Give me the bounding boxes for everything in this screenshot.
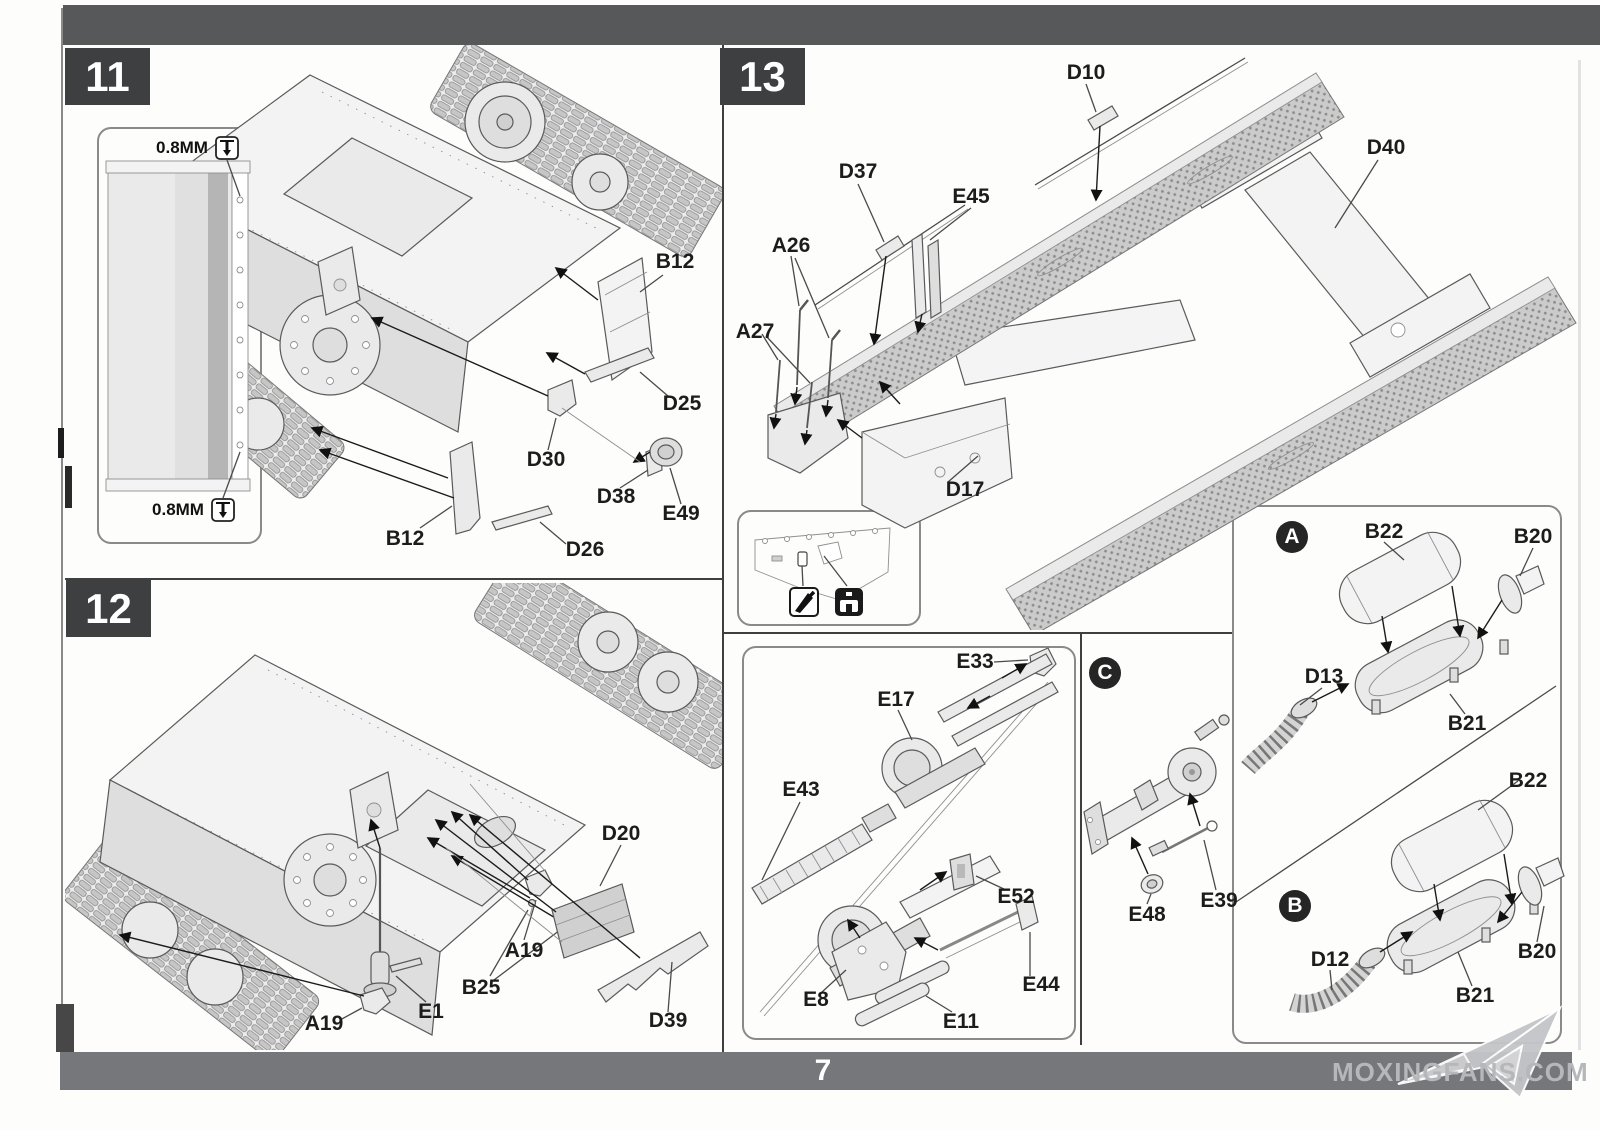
part-label-d12: D12 xyxy=(1311,948,1350,972)
part-label-a19: A19 xyxy=(505,939,544,963)
c-parts-drawing xyxy=(1084,715,1229,904)
part-label-d13: D13 xyxy=(1305,665,1344,689)
drill-note-bottom: 0.8MM xyxy=(152,500,204,520)
part-label-d17: D17 xyxy=(946,478,985,502)
part-label-d30: D30 xyxy=(527,448,566,472)
step12-illustration xyxy=(60,552,758,1063)
glue-icon xyxy=(835,588,863,616)
part-label-e11: E11 xyxy=(943,1010,979,1034)
drill-note-top: 0.8MM xyxy=(156,138,208,158)
part-label-e33: E33 xyxy=(956,650,993,674)
drill-icon xyxy=(212,499,234,521)
part-label-d10: D10 xyxy=(1067,61,1106,85)
step11-inset-drawing xyxy=(106,137,250,521)
part-label-e44: E44 xyxy=(1022,973,1059,997)
part-d30-bracket xyxy=(548,380,576,416)
part-d17-box xyxy=(862,398,1012,528)
part-label-e45: E45 xyxy=(952,185,989,209)
part-label-b22: B22 xyxy=(1509,769,1548,793)
part-label-d38: D38 xyxy=(597,485,636,509)
part-label-e8: E8 xyxy=(803,988,829,1012)
part-label-d39: D39 xyxy=(649,1009,688,1033)
part-a26-post xyxy=(797,310,800,385)
part-label-e39: E39 xyxy=(1200,889,1237,913)
part-label-b12: B12 xyxy=(386,527,425,551)
part-label-a19: A19 xyxy=(305,1012,344,1036)
page-number: 7 xyxy=(815,1054,832,1088)
part-label-a27: A27 xyxy=(736,320,775,344)
part-label-a26: A26 xyxy=(772,234,811,258)
part-label-e17: E17 xyxy=(877,688,914,712)
step13-note-drawing xyxy=(755,528,890,616)
part-d26-strip xyxy=(492,506,552,530)
drill-icon xyxy=(216,137,238,159)
part-e45 xyxy=(912,234,926,318)
part-label-b25: B25 xyxy=(462,976,501,1000)
part-label-b22: B22 xyxy=(1365,520,1404,544)
part-label-d40: D40 xyxy=(1367,136,1406,160)
instruction-page: 11 12 13 A B C xyxy=(0,0,1600,1130)
part-label-d37: D37 xyxy=(839,160,878,184)
part-label-e48: E48 xyxy=(1128,903,1165,927)
part-e39-crank xyxy=(1162,828,1208,852)
part-label-e1: E1 xyxy=(418,1000,444,1024)
part-label-b12: B12 xyxy=(656,250,695,274)
part-label-d26: D26 xyxy=(566,538,605,562)
a-subassembly-drawing xyxy=(1248,523,1544,768)
part-label-d25: D25 xyxy=(663,392,702,416)
watermark-text: MOXINGFANS.COM xyxy=(1332,1057,1572,1088)
part-b21-trough xyxy=(1379,871,1523,981)
instruction-line-art xyxy=(0,0,1600,1130)
part-label-e52: E52 xyxy=(997,885,1034,909)
part-d39-strip xyxy=(598,932,708,1002)
part-label-b21: B21 xyxy=(1456,984,1495,1008)
part-label-d20: D20 xyxy=(602,822,641,846)
part-b21-trough xyxy=(1347,611,1491,721)
part-label-e49: E49 xyxy=(662,502,699,526)
part-e17-channel xyxy=(938,654,1052,722)
fender-strip xyxy=(774,73,1344,450)
part-label-b20: B20 xyxy=(1514,525,1553,549)
part-label-b20: B20 xyxy=(1518,940,1557,964)
knife-icon xyxy=(790,588,818,616)
part-b12-column xyxy=(450,442,480,534)
part-label-e43: E43 xyxy=(782,778,819,802)
part-label-b21: B21 xyxy=(1448,712,1487,736)
